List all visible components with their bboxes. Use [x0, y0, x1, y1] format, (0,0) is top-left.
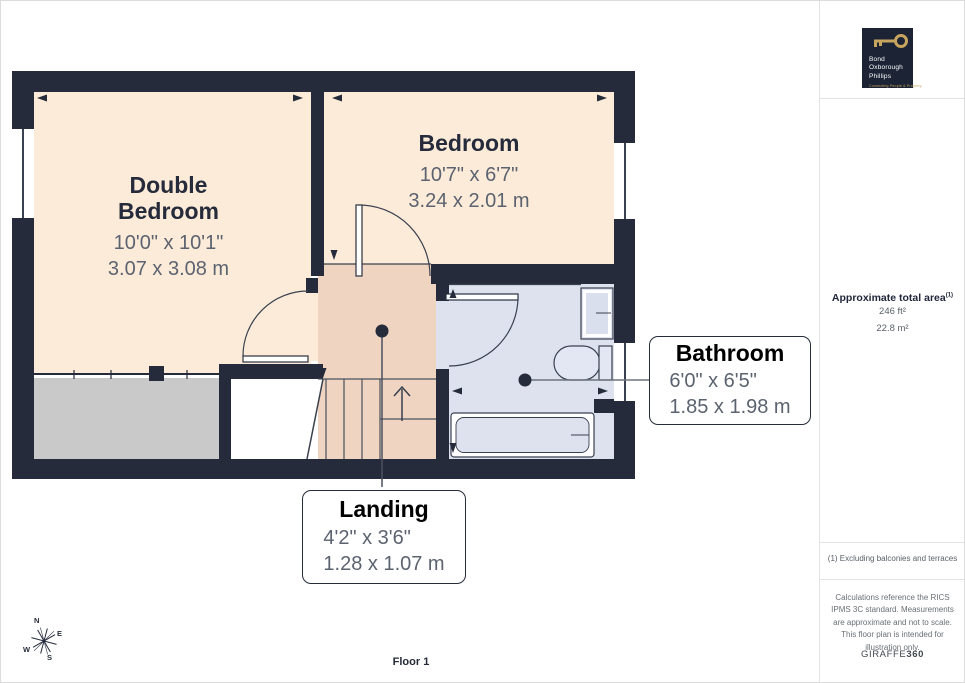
landing-floor — [318, 264, 436, 459]
landing-metric: 1.28 x 1.07 m — [323, 551, 444, 577]
giraffe360-brand: GIRAFFE360 — [819, 649, 965, 660]
window-left-glass-line — [22, 129, 24, 218]
compass-south-label: S — [47, 653, 52, 662]
dividing-wall-bedrooms — [311, 92, 324, 276]
bedroom-bottom-wall — [431, 264, 614, 284]
brand-name: GIRAFFE — [861, 649, 906, 660]
bathroom-left-wall-lower — [436, 369, 449, 459]
sidebar-divider-3 — [819, 579, 965, 580]
bathroom-imperial: 6'0" x 6'5" — [669, 368, 790, 394]
total-area-block: Approximate total area(1) 246 ft² 22.8 m… — [819, 292, 965, 337]
bedroom-metric: 3.24 x 2.01 m — [384, 188, 554, 214]
landing-imperial: 4'2" x 3'6" — [323, 525, 444, 551]
compass-north-label: N — [34, 616, 39, 625]
total-area-title: Approximate total area — [832, 292, 946, 304]
window-bedroom-glass-line — [624, 143, 626, 219]
right-wall-jog — [594, 399, 635, 413]
railing-post — [149, 366, 164, 381]
void-left-wall — [219, 367, 231, 459]
total-area-imperial: 246 ft² — [819, 304, 965, 321]
landing-callout: Landing 4'2" x 3'6" 1.28 x 1.07 m — [302, 490, 466, 584]
logo-line3: Phillips — [869, 73, 913, 81]
agency-logo: Bond Oxborough Phillips Connecting Peopl… — [862, 28, 913, 88]
logo-tagline: Connecting People & Property — [862, 84, 913, 88]
total-area-metric: 22.8 m² — [819, 321, 965, 338]
outer-wall-top — [12, 71, 635, 92]
bathroom-name: Bathroom — [676, 341, 785, 367]
floor-label: Floor 1 — [356, 656, 466, 668]
logo-line1: Bond — [869, 56, 913, 64]
bathroom-callout: Bathroom 6'0" x 6'5" 1.85 x 1.98 m — [649, 336, 811, 425]
bedroom-imperial: 10'7" x 6'7" — [384, 162, 554, 188]
bathroom-left-wall-top-stub — [436, 284, 449, 301]
compass-west-label: W — [23, 645, 30, 654]
double-bedroom-bottom-wall — [219, 364, 323, 379]
void-grey-area — [34, 378, 219, 459]
sidebar-divider-2 — [819, 542, 965, 543]
bedroom-label: Bedroom 10'7" x 6'7" 3.24 x 2.01 m — [384, 131, 554, 214]
sidebar-vertical-divider — [819, 1, 820, 683]
brand-suffix: 360 — [906, 649, 924, 660]
double-bedroom-label: Double Bedroom 10'0" x 10'1" 3.07 x 3.08… — [96, 173, 241, 282]
double-bedroom-imperial: 10'0" x 10'1" — [96, 230, 241, 256]
bathroom-doorway-floor — [436, 301, 449, 369]
outer-wall-bottom — [12, 459, 635, 479]
window-bathroom-glass-line — [624, 343, 626, 401]
landing-name: Landing — [339, 497, 428, 523]
bathroom-floor — [449, 284, 614, 459]
disclaimer-text: Calculations reference the RICS IPMS 3C … — [828, 592, 957, 654]
total-area-footnote-marker: (1) — [946, 293, 953, 299]
area-footnote: (1) Excluding balconies and terraces — [819, 554, 965, 563]
bathroom-metric: 1.85 x 1.98 m — [669, 394, 790, 420]
landing-left-stub — [306, 278, 318, 293]
compass-rose — [28, 625, 60, 657]
bedroom-name: Bedroom — [384, 131, 554, 157]
sidebar-divider-1 — [819, 98, 965, 99]
outer-wall-right — [614, 71, 635, 479]
compass-east-label: E — [57, 629, 62, 638]
floorplan-page: Double Bedroom 10'0" x 10'1" 3.07 x 3.08… — [0, 0, 965, 683]
double-bedroom-metric: 3.07 x 3.08 m — [96, 256, 241, 282]
logo-line2: Oxborough — [869, 64, 913, 72]
double-bedroom-name: Double Bedroom — [96, 173, 241, 225]
key-icon — [866, 31, 910, 53]
double-bedroom-doorway-floor — [306, 293, 318, 361]
stairwell-void — [231, 379, 323, 459]
